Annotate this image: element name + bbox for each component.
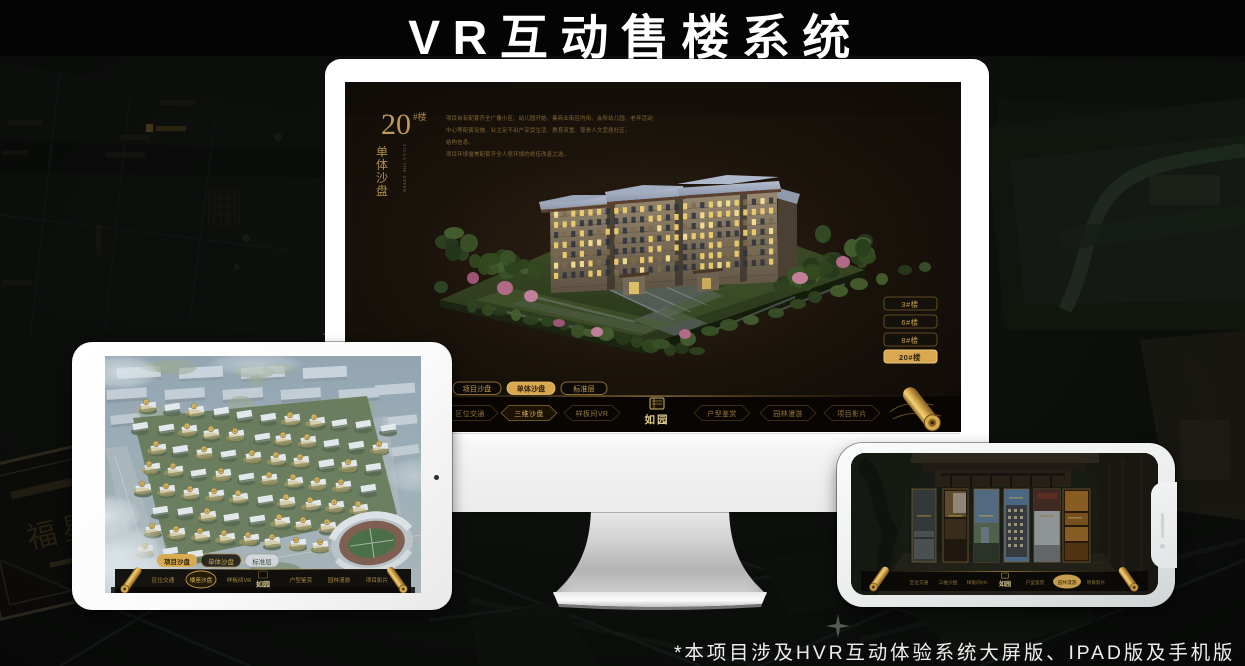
svg-text:单体沙盘: 单体沙盘 — [517, 385, 547, 394]
svg-text:#楼: #楼 — [413, 111, 427, 122]
svg-text:20#楼: 20#楼 — [899, 352, 921, 362]
svg-text:8#楼: 8#楼 — [901, 335, 918, 345]
svg-text:如园: 如园 — [645, 413, 670, 426]
svg-text:楼座沙盘: 楼座沙盘 — [190, 576, 213, 584]
svg-text:中心等配套设施、业主足不出户享受生活、教育双重、尊贵人文宜居: 中心等配套设施、业主足不出户享受生活、教育双重、尊贵人文宜居社区。 — [446, 126, 631, 134]
svg-text:20: 20 — [381, 108, 411, 141]
svg-text:园林漫游: 园林漫游 — [1058, 579, 1077, 586]
svg-text:三维沙盘: 三维沙盘 — [514, 409, 544, 418]
svg-text:项目环境優美配套齐全人居环境的绝佳改善之选。: 项目环境優美配套齐全人居环境的绝佳改善之选。 — [446, 150, 569, 158]
svg-text:园林漫游: 园林漫游 — [328, 576, 351, 584]
svg-text:项目影片: 项目影片 — [366, 576, 389, 584]
svg-text:单: 单 — [376, 145, 388, 159]
svg-text:结构信息。: 结构信息。 — [446, 138, 474, 146]
svg-text:盘: 盘 — [376, 183, 388, 198]
svg-text:三维沙盘: 三维沙盘 — [939, 579, 958, 586]
svg-text:户型鉴赏: 户型鉴赏 — [290, 576, 313, 584]
svg-text:项目沙盘: 项目沙盘 — [463, 385, 492, 394]
svg-text:区位交通: 区位交通 — [455, 409, 485, 418]
svg-text:样板间VR: 样板间VR — [227, 576, 252, 584]
svg-text:户型鉴赏: 户型鉴赏 — [1026, 579, 1045, 586]
svg-text:体: 体 — [376, 158, 388, 172]
svg-text:区位交通: 区位交通 — [152, 576, 175, 584]
svg-text:沙: 沙 — [376, 171, 388, 185]
svg-text:样板间VR: 样板间VR — [967, 579, 988, 586]
svg-text:项目沙盘: 项目沙盘 — [164, 557, 191, 566]
svg-text:园林漫游: 园林漫游 — [773, 409, 803, 418]
svg-text:VILLA THE UPPER: VILLA THE UPPER — [402, 144, 407, 193]
svg-text:项目影片: 项目影片 — [1087, 579, 1106, 586]
svg-text:标准层: 标准层 — [573, 385, 595, 394]
svg-text:如园: 如园 — [256, 580, 270, 589]
svg-text:如园: 如园 — [999, 580, 1011, 588]
svg-text:区位交通: 区位交通 — [910, 579, 929, 586]
svg-text:样板间VR: 样板间VR — [576, 409, 609, 418]
svg-text:6#楼: 6#楼 — [901, 317, 918, 327]
svg-text:标准层: 标准层 — [252, 557, 272, 566]
svg-text:项目自有配套齐全广覆小区、幼儿园开始、集商业街区内街、会所幼: 项目自有配套齐全广覆小区、幼儿园开始、集商业街区内街、会所幼儿园、老年活动 — [446, 114, 653, 122]
svg-text:户型鉴赏: 户型鉴赏 — [707, 409, 737, 418]
svg-text:3#楼: 3#楼 — [901, 299, 918, 309]
svg-text:项目影片: 项目影片 — [837, 409, 867, 418]
svg-text:单体沙盘: 单体沙盘 — [208, 557, 235, 566]
